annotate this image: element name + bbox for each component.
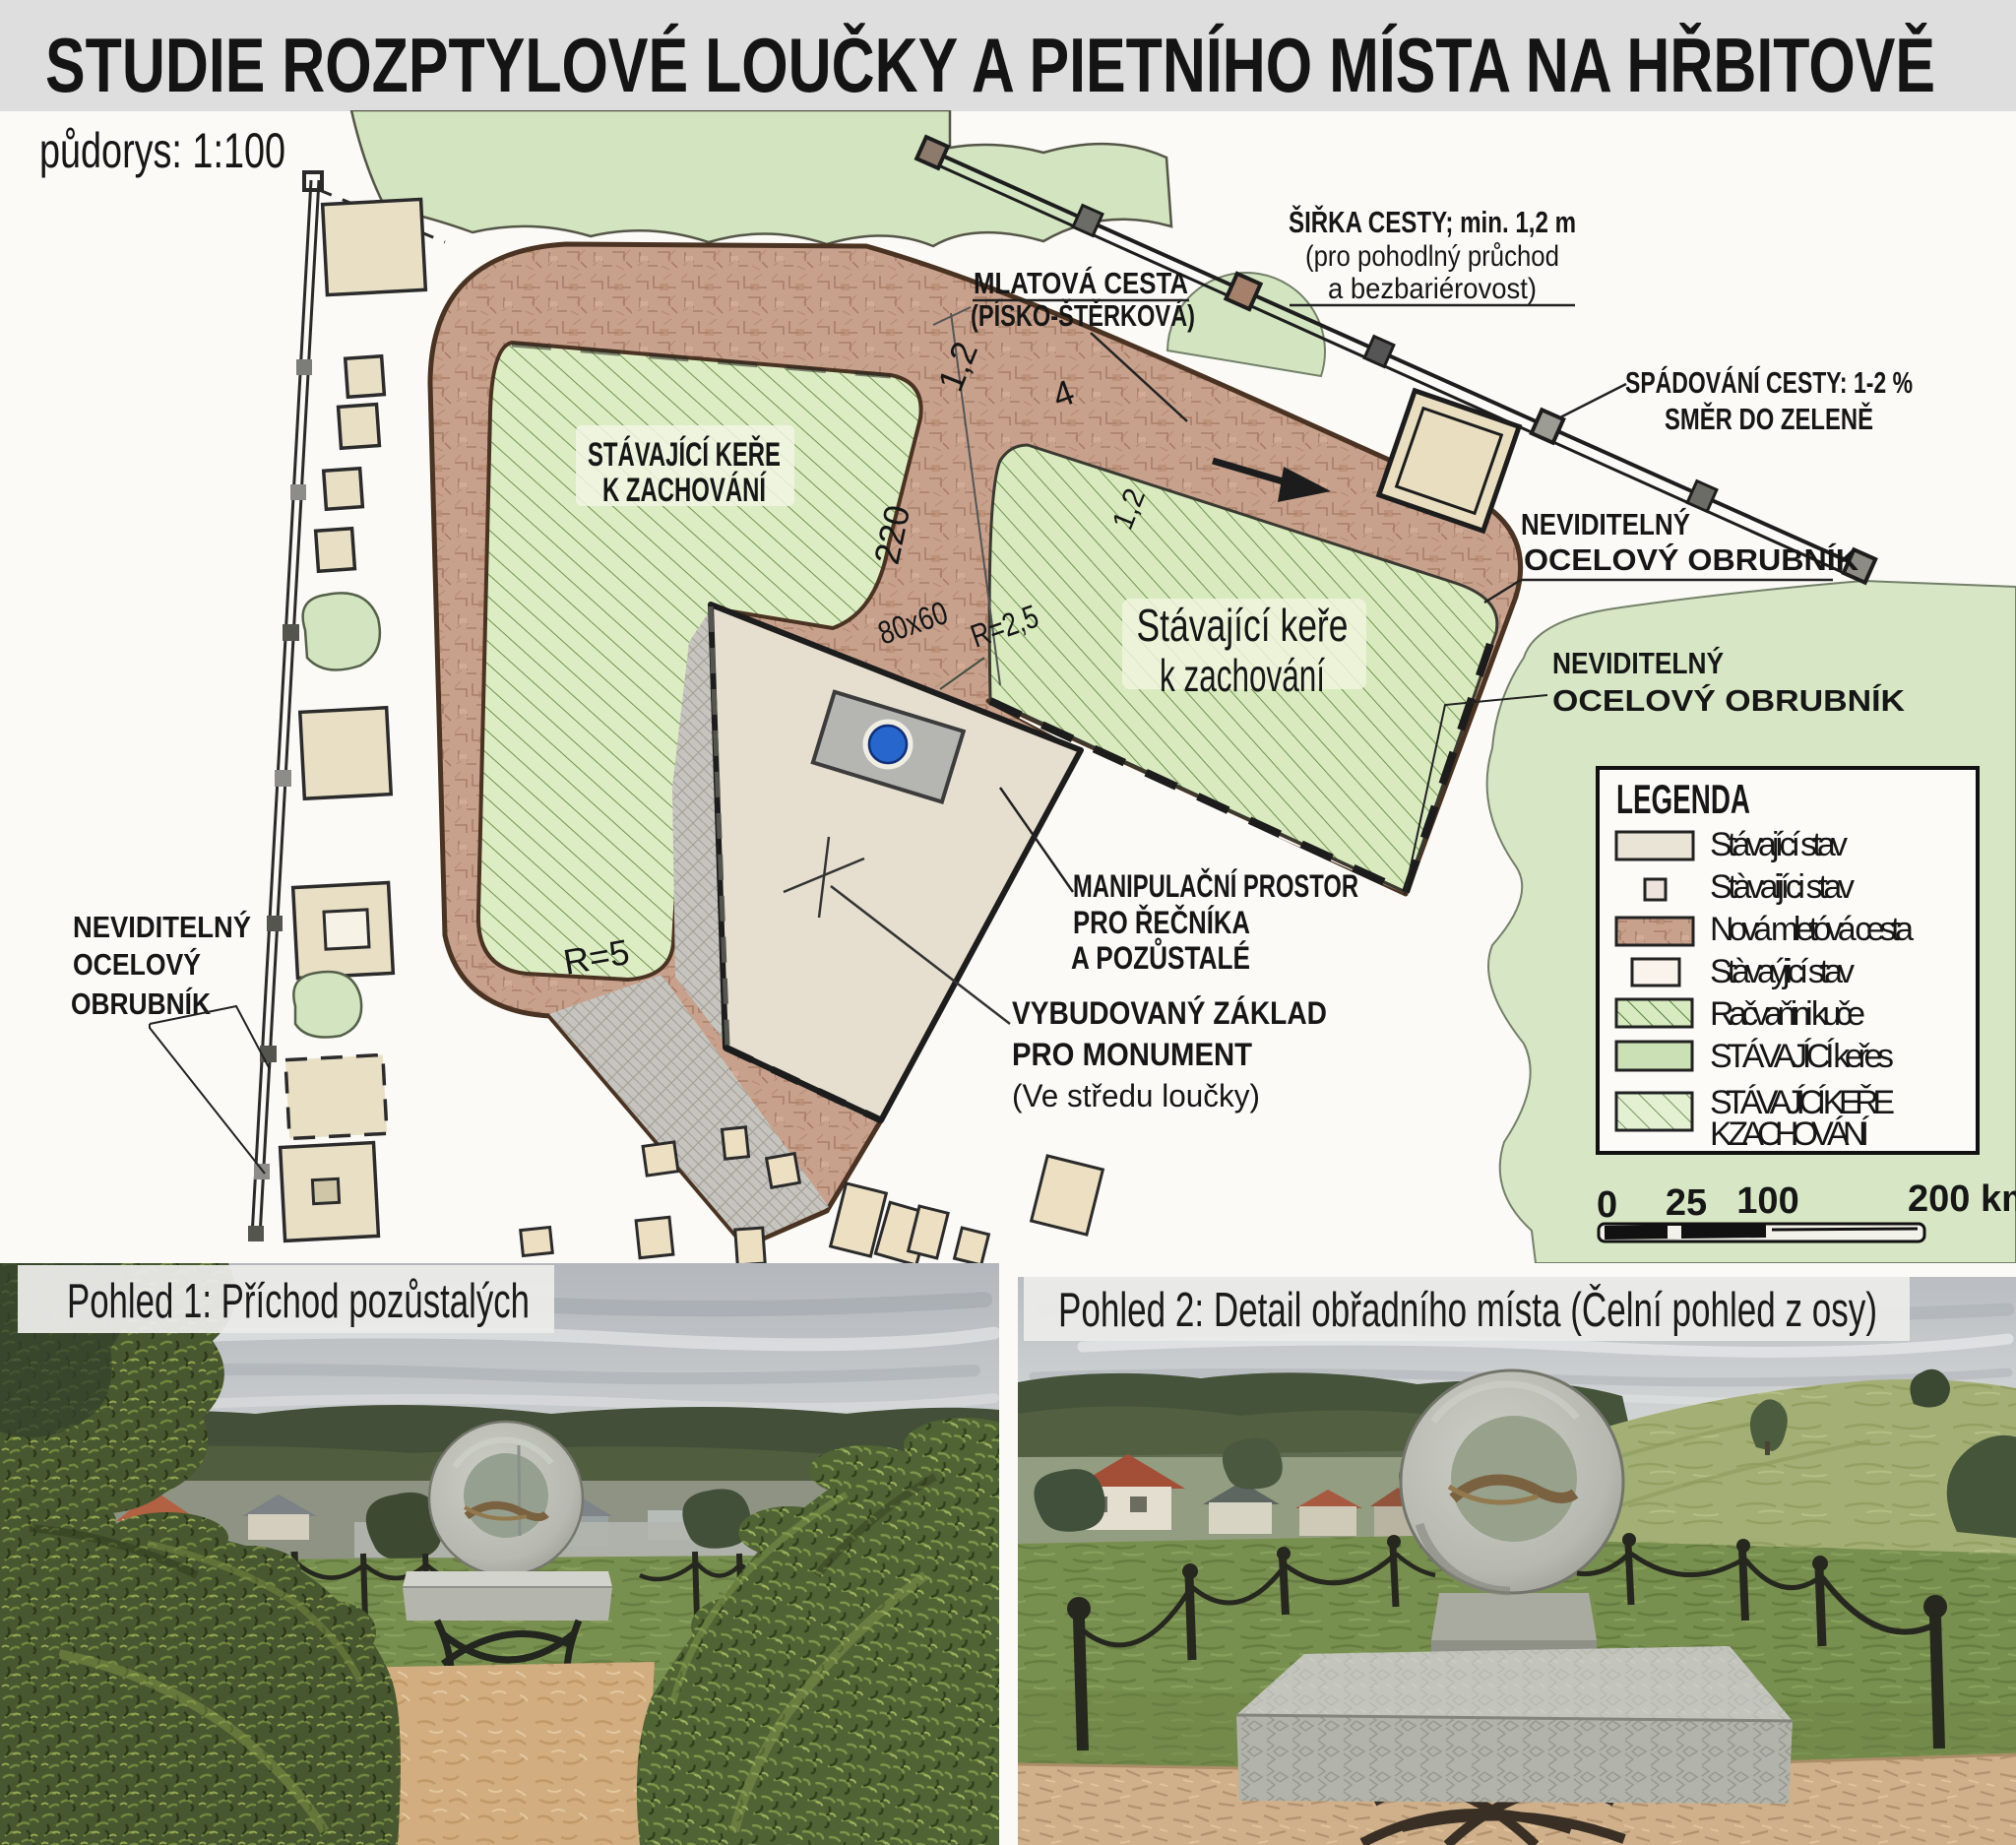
svg-text:25: 25 [1666,1182,1707,1224]
svg-text:Pohled 1: Příchod pozůstalých: Pohled 1: Příchod pozůstalých [67,1275,530,1328]
svg-text:Račvaňini kuče: Račvaňini kuče [1710,995,1865,1033]
svg-text:NEVIDITELNÝ: NEVIDITELNÝ [1552,646,1724,680]
svg-text:Stàvaijíci stav: Stàvaijíci stav [1710,868,1855,906]
svg-text:a bezbariérovost): a bezbariérovost) [1328,273,1537,305]
svg-text:0: 0 [1597,1184,1617,1226]
svg-text:SPÁDOVÁNÍ CESTY: 1-2 %: SPÁDOVÁNÍ CESTY: 1-2 % [1625,365,1913,400]
svg-text:SMĚR DO ZELENĚ: SMĚR DO ZELENĚ [1665,401,1873,436]
svg-text:LEGENDA: LEGENDA [1616,776,1750,822]
svg-text:OCELOVÝ OBRUBNÍK: OCELOVÝ OBRUBNÍK [1524,542,1859,577]
svg-text:NEVIDITELNÝ: NEVIDITELNÝ [73,910,251,944]
svg-text:(Ve středu loučky): (Ve středu loučky) [1012,1078,1260,1113]
svg-text:Stàvaýjicí stav: Stàvaýjicí stav [1710,953,1855,990]
svg-text:Stávající stav: Stávající stav [1710,826,1848,863]
svg-text:PRO MONUMENT: PRO MONUMENT [1012,1037,1252,1072]
svg-text:VYBUDOVANÝ ZÁKLAD: VYBUDOVANÝ ZÁKLAD [1012,995,1327,1031]
svg-text:PRO ŘEČNÍKA: PRO ŘEČNÍKA [1073,905,1250,940]
svg-text:Nová mletóvá cesta: Nová mletóvá cesta [1710,911,1914,948]
svg-text:NEVIDITELNÝ: NEVIDITELNÝ [1521,507,1690,541]
svg-text:Stávající keře: Stávající keře [1137,600,1349,651]
svg-text:(pro pohodlný průchod: (pro pohodlný průchod [1305,240,1559,273]
svg-text:MANIPULAČNÍ PROSTOR: MANIPULAČNÍ PROSTOR [1073,868,1358,904]
svg-text:A POZŮSTALÉ: A POZŮSTALÉ [1071,938,1250,976]
svg-text:OCELOVÝ: OCELOVÝ [73,947,201,982]
svg-text:k zachování: k zachování [1160,650,1325,701]
svg-text:OCELOVÝ OBRUBNÍK: OCELOVÝ OBRUBNÍK [1552,683,1906,718]
svg-text:STUDIE ROZPTYLOVÉ LOUČKY A PIE: STUDIE ROZPTYLOVÉ LOUČKY A PIETNÍHO MÍST… [45,22,1935,108]
svg-text:STÁVAJÍCÍ KEŘE: STÁVAJÍCÍ KEŘE [588,436,781,474]
svg-text:Pohled 2: Detail obřadního mís: Pohled 2: Detail obřadního místa (Čelní … [1058,1284,1877,1337]
svg-text:půdorys: 1:100: půdorys: 1:100 [39,123,285,178]
svg-text:200 km: 200 km [1908,1178,2016,1220]
svg-text:100: 100 [1736,1180,1798,1222]
svg-text:(PÍSKO-ŠTĚRKOVÁ): (PÍSKO-ŠTĚRKOVÁ) [971,297,1195,333]
svg-text:STÁVAJÍCÍ keřes: STÁVAJÍCÍ keřes [1710,1038,1894,1075]
svg-text:MLATOVÁ CESTA: MLATOVÁ CESTA [974,266,1188,300]
svg-text:K ZACHOVÁNÍ: K ZACHOVÁNÍ [602,472,767,509]
svg-text:ŠIŘKA CESTY; min. 1,2 m: ŠIŘKA CESTY; min. 1,2 m [1289,204,1576,239]
svg-text:K ZACHOVÁNÍ: K ZACHOVÁNÍ [1710,1115,1870,1153]
